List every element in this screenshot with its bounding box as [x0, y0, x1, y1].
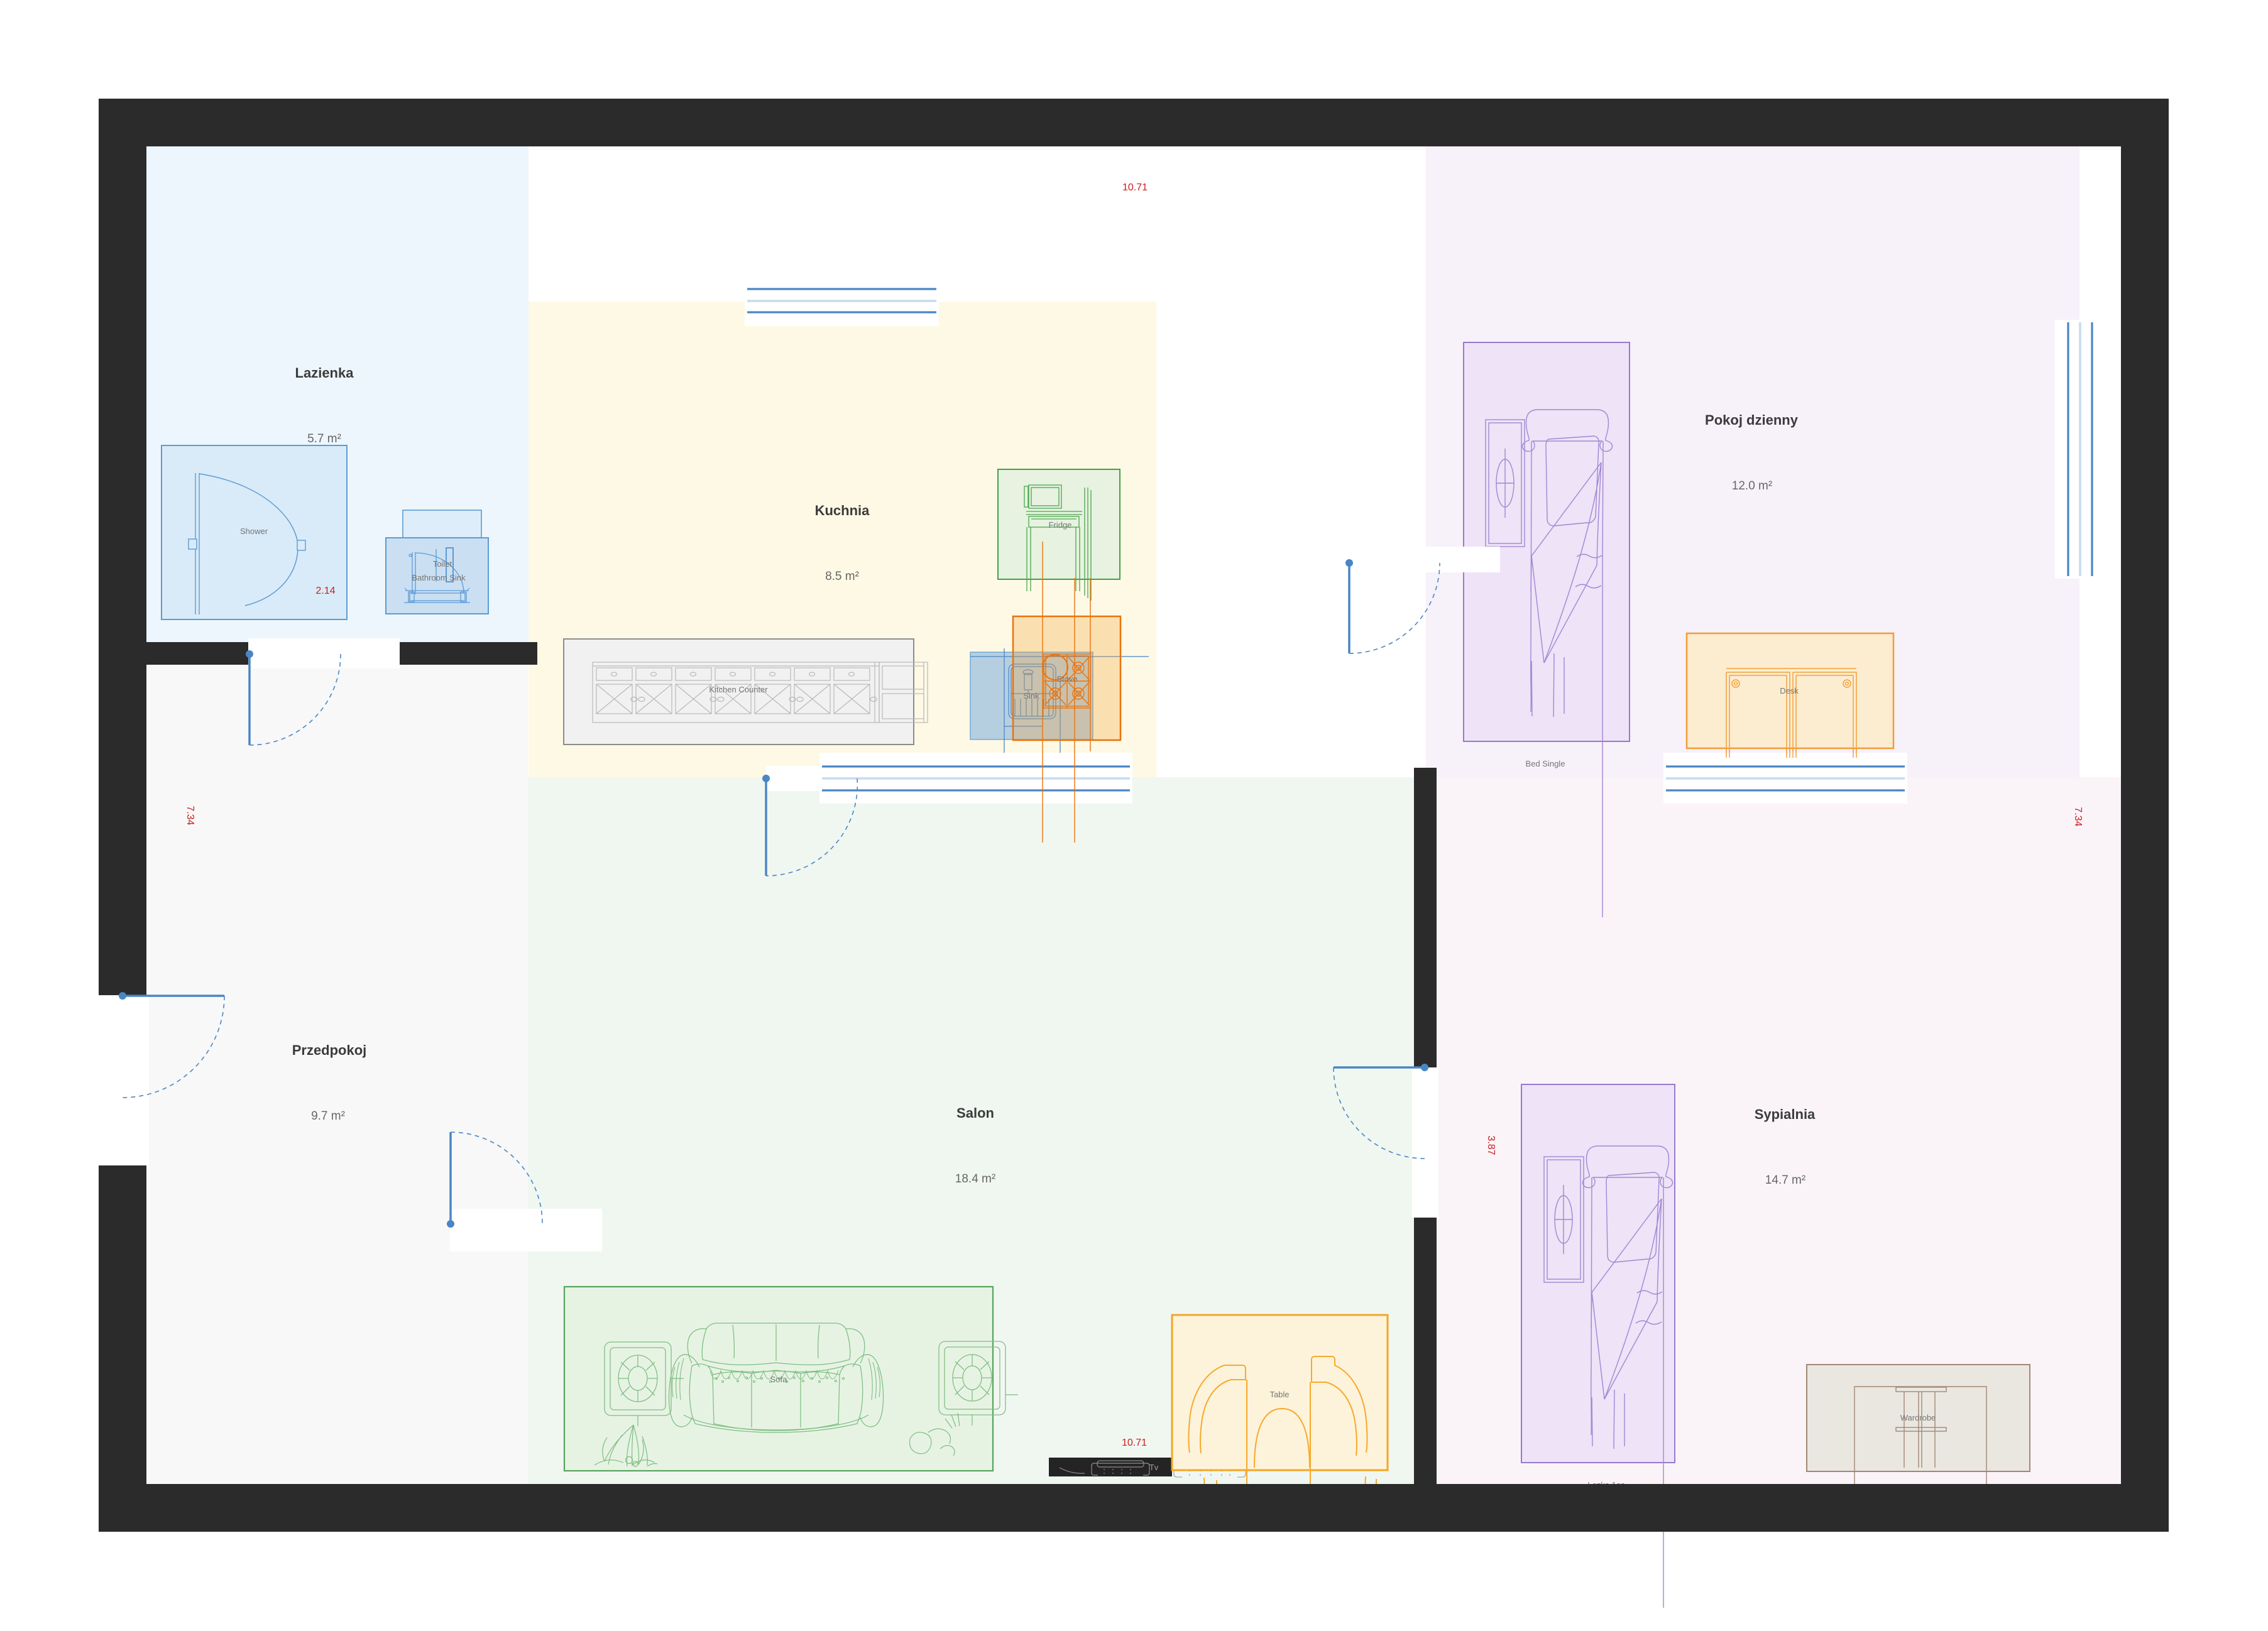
- svg-text:18.4 m²: 18.4 m²: [955, 1172, 995, 1186]
- svg-text:Fridge: Fridge: [1049, 520, 1072, 530]
- svg-text:7.34: 7.34: [185, 805, 195, 825]
- svg-text:Sofa: Sofa: [770, 1375, 788, 1384]
- svg-text:Shower: Shower: [240, 526, 268, 536]
- svg-text:8.5 m²: 8.5 m²: [825, 570, 859, 583]
- svg-text:Przedpokoj: Przedpokoj: [292, 1042, 367, 1058]
- svg-text:Kitchen Counter: Kitchen Counter: [709, 685, 768, 694]
- svg-text:9.7 m²: 9.7 m²: [311, 1110, 345, 1123]
- svg-text:Lazienka: Lazienka: [295, 365, 354, 381]
- svg-text:14.7 m²: 14.7 m²: [1765, 1174, 1805, 1187]
- svg-text:Sypialnia: Sypialnia: [1755, 1106, 1816, 1122]
- svg-text:Tv: Tv: [1149, 1463, 1159, 1472]
- svg-text:2.14: 2.14: [315, 586, 335, 596]
- svg-text:3.87: 3.87: [1486, 1135, 1496, 1155]
- svg-text:Toilet: Toilet: [433, 559, 452, 569]
- svg-text:Bed Single: Bed Single: [1526, 759, 1565, 768]
- svg-text:10.71: 10.71: [1122, 1437, 1147, 1448]
- svg-text:12.0 m²: 12.0 m²: [1732, 479, 1772, 493]
- svg-text:10.71: 10.71: [1122, 182, 1148, 193]
- svg-text:Salon: Salon: [956, 1105, 994, 1121]
- svg-text:Desk: Desk: [1780, 686, 1799, 695]
- svg-text:Pokoj dzienny: Pokoj dzienny: [1705, 412, 1799, 428]
- svg-text:Wardrobe: Wardrobe: [1900, 1413, 1936, 1422]
- svg-text:Kuchnia: Kuchnia: [815, 503, 870, 518]
- svg-text:Bathroom Sink: Bathroom Sink: [412, 573, 466, 582]
- svg-text:Sink: Sink: [1023, 691, 1039, 701]
- svg-text:5.7 m²: 5.7 m²: [307, 432, 341, 445]
- svg-text:Table: Table: [1269, 1390, 1289, 1399]
- svg-text:7.34: 7.34: [2073, 807, 2083, 826]
